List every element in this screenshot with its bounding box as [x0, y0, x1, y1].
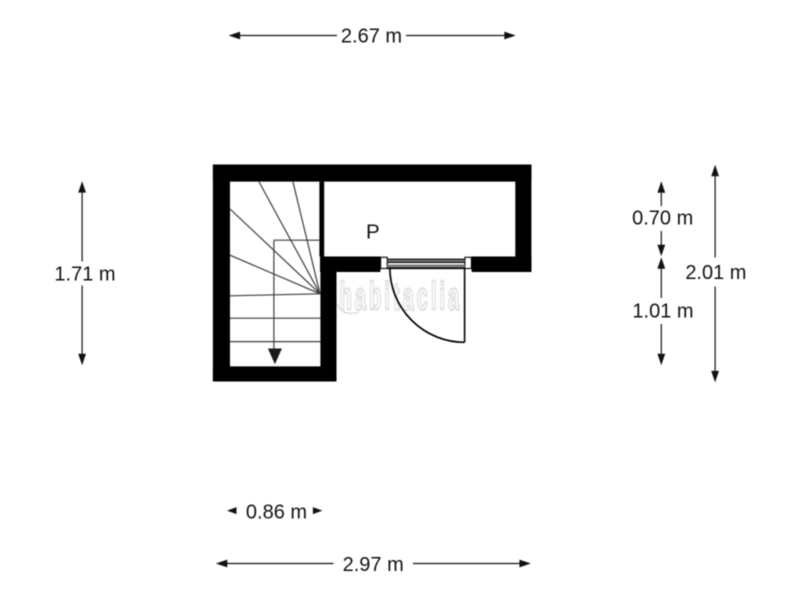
svg-text:2.67 m: 2.67 m	[341, 26, 402, 48]
svg-text:2.01 m: 2.01 m	[685, 262, 746, 284]
svg-text:habitaclia: habitaclia	[340, 274, 463, 318]
svg-text:1.01 m: 1.01 m	[632, 301, 693, 323]
svg-text:P: P	[366, 221, 380, 244]
svg-text:1.71 m: 1.71 m	[54, 264, 115, 286]
svg-text:2.97 m: 2.97 m	[343, 554, 404, 576]
svg-text:0.86 m: 0.86 m	[246, 502, 307, 524]
svg-text:0.70 m: 0.70 m	[632, 208, 693, 230]
